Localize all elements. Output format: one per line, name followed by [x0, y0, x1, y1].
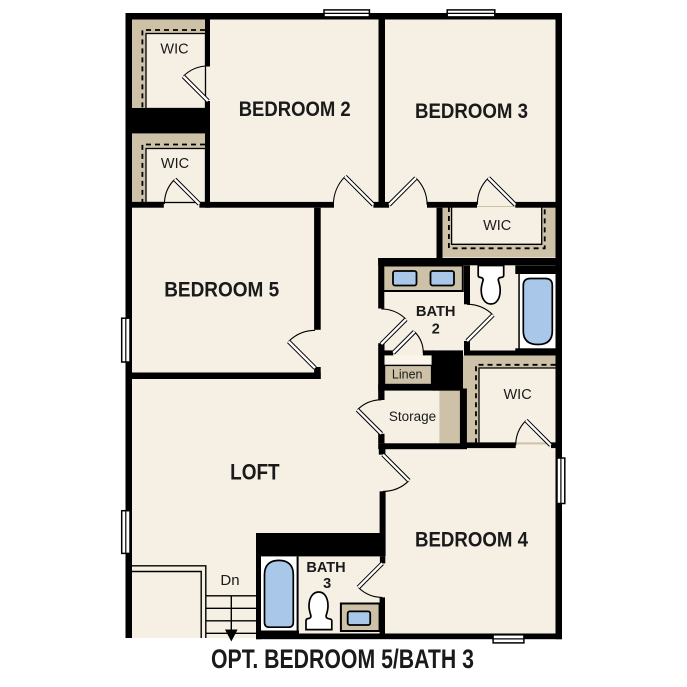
- svg-text:BEDROOM 4: BEDROOM 4: [415, 529, 528, 552]
- svg-text:BEDROOM 5: BEDROOM 5: [164, 279, 279, 302]
- svg-text:WIC: WIC: [160, 41, 188, 57]
- svg-text:BATH: BATH: [416, 304, 456, 320]
- svg-text:LOFT: LOFT: [230, 460, 280, 485]
- svg-text:2: 2: [432, 321, 440, 337]
- svg-text:WIC: WIC: [483, 218, 511, 234]
- svg-text:WIC: WIC: [161, 156, 189, 172]
- svg-text:3: 3: [323, 576, 331, 592]
- svg-text:Storage: Storage: [389, 409, 436, 424]
- svg-text:OPT. BEDROOM 5/BATH 3: OPT. BEDROOM 5/BATH 3: [211, 644, 474, 674]
- svg-text:Dn: Dn: [220, 572, 239, 589]
- svg-text:BEDROOM 3: BEDROOM 3: [415, 100, 528, 123]
- svg-text:BEDROOM 2: BEDROOM 2: [239, 98, 351, 121]
- svg-text:Linen: Linen: [392, 367, 423, 381]
- svg-text:WIC: WIC: [504, 387, 532, 403]
- svg-text:BATH: BATH: [306, 560, 345, 576]
